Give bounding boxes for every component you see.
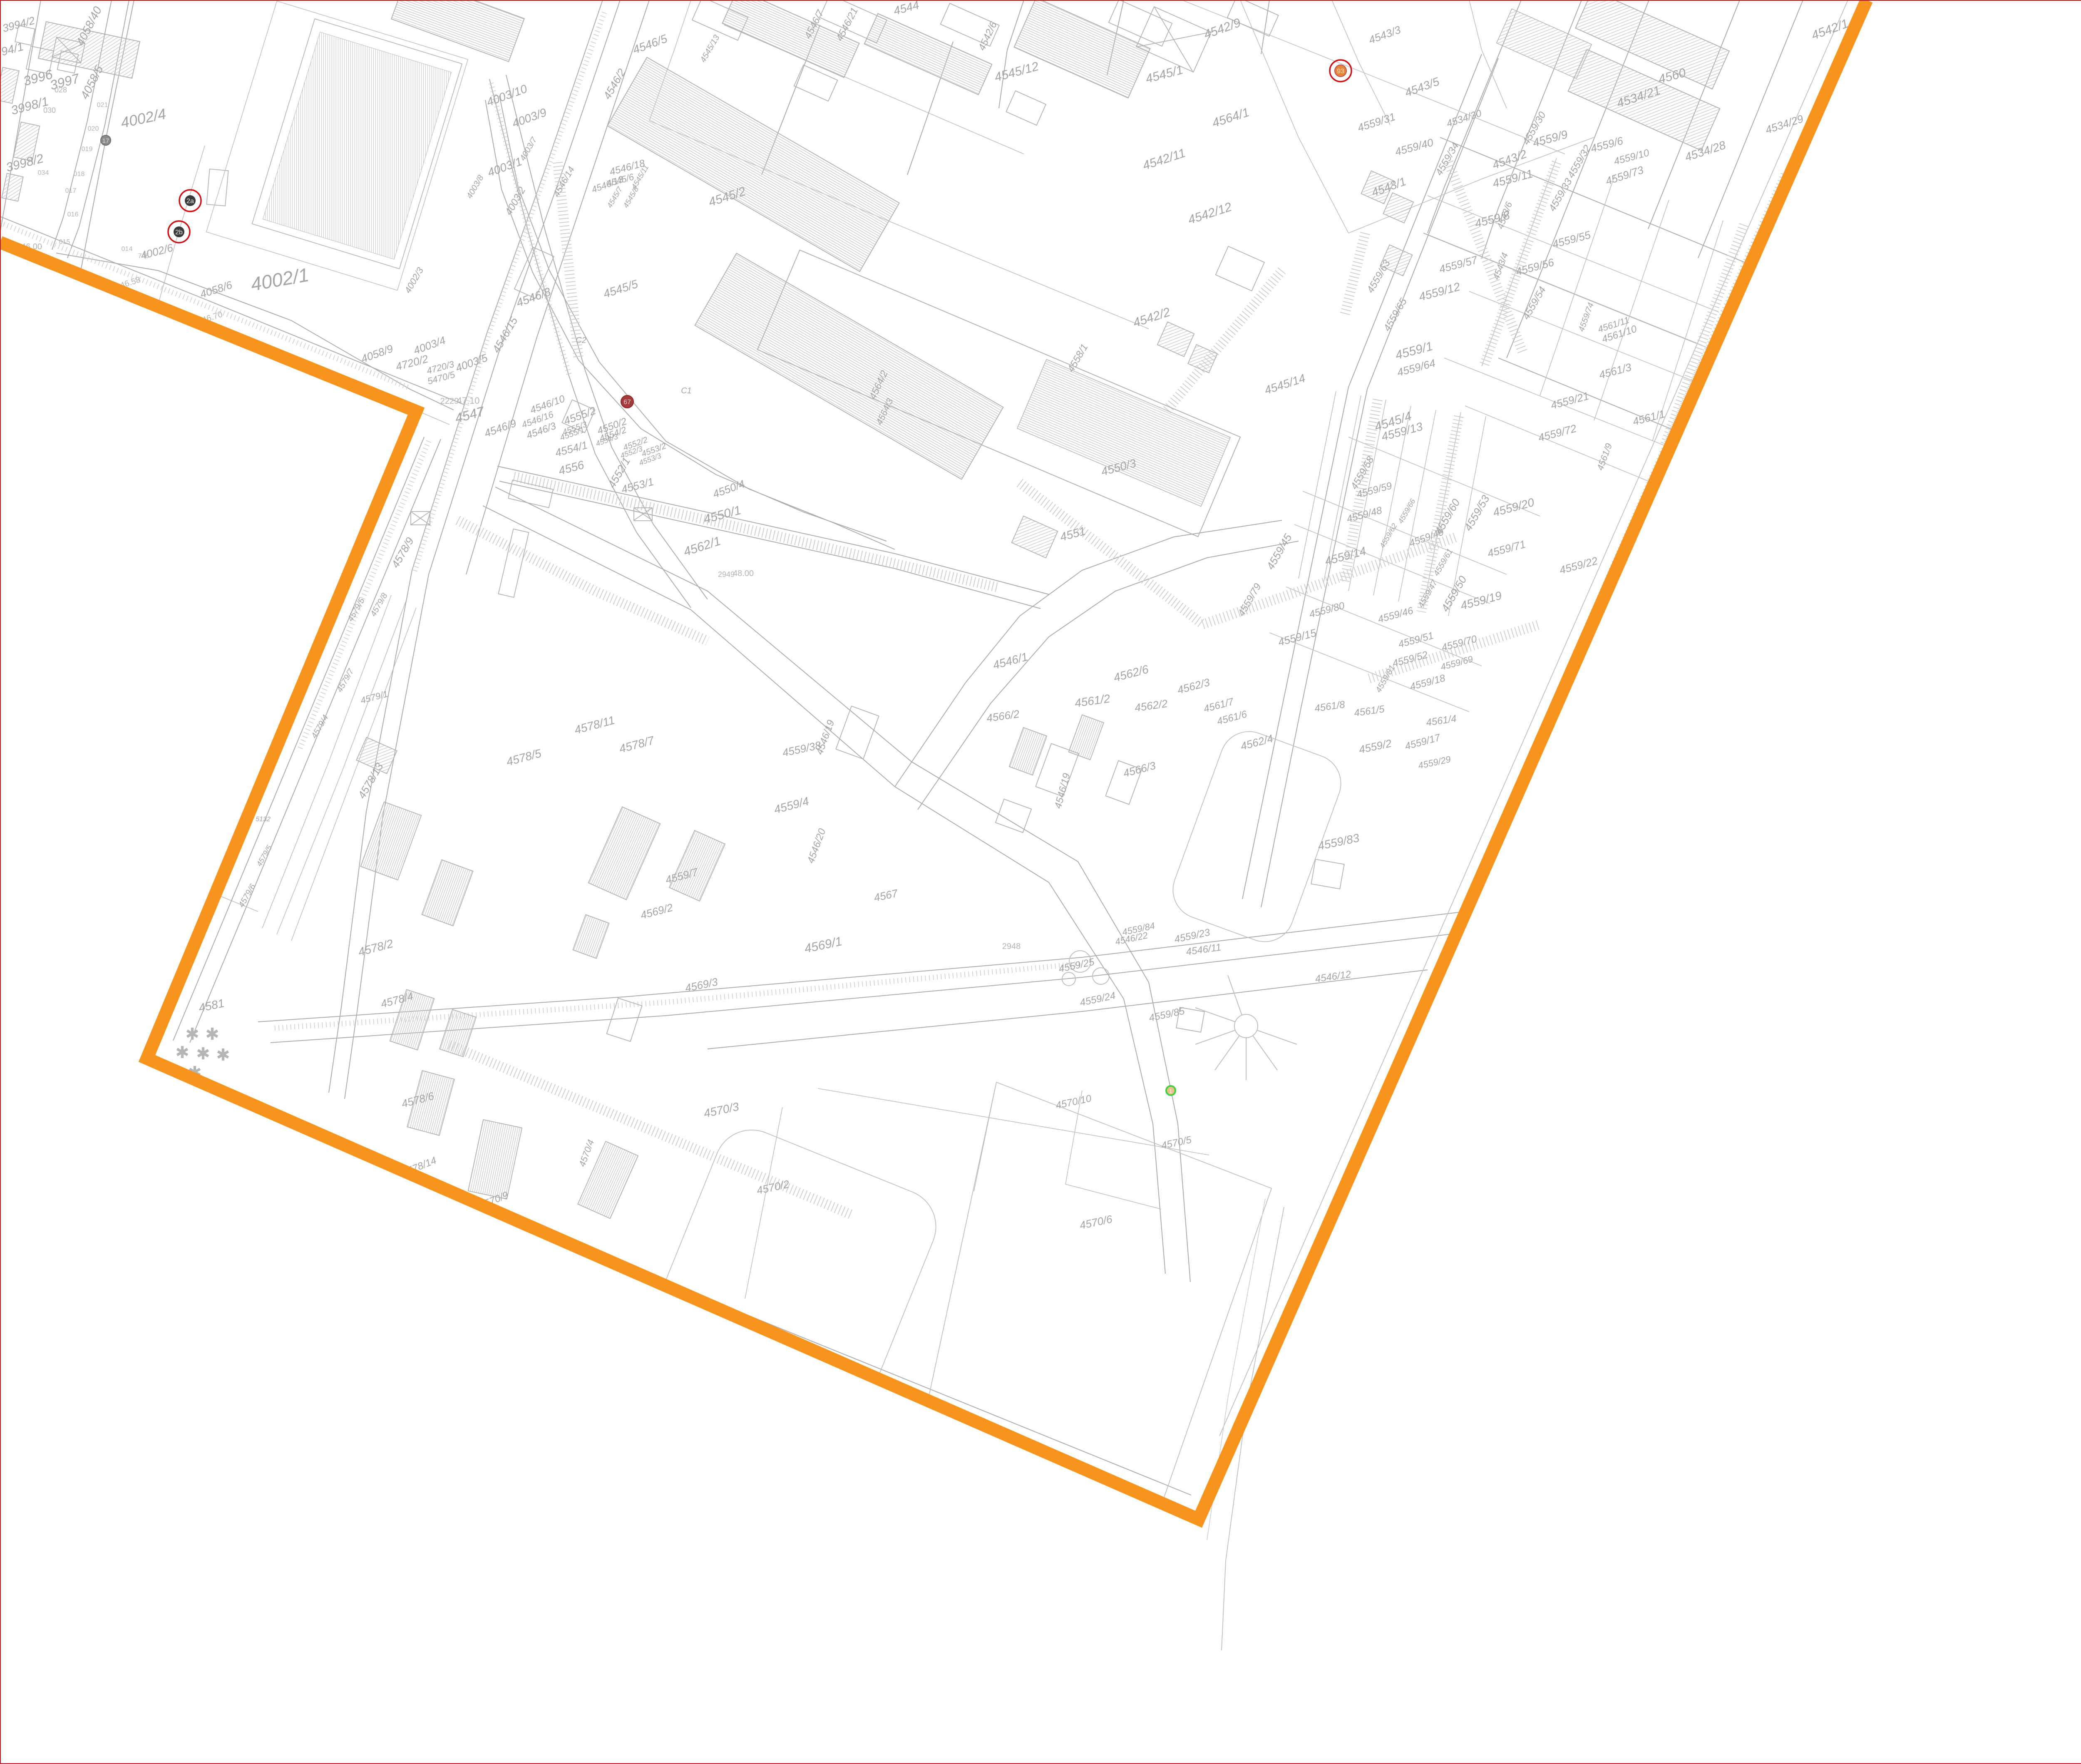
svg-text:015: 015 <box>59 239 70 246</box>
svg-text:✱: ✱ <box>185 1025 199 1043</box>
svg-text:016: 016 <box>67 211 79 218</box>
svg-text:020: 020 <box>88 125 99 132</box>
svg-text:018: 018 <box>74 171 85 178</box>
svg-text:17: 17 <box>102 137 109 144</box>
svg-text:✱: ✱ <box>205 1025 219 1043</box>
svg-text:745: 745 <box>138 253 149 260</box>
svg-text:C2: C2 <box>576 336 586 345</box>
svg-text:✱: ✱ <box>175 1043 189 1062</box>
svg-text:2949: 2949 <box>718 570 735 579</box>
svg-text:017: 017 <box>65 187 77 194</box>
svg-text:030: 030 <box>43 106 56 114</box>
svg-text:019: 019 <box>82 146 93 153</box>
svg-text:2229: 2229 <box>440 397 459 406</box>
svg-text:48.00: 48.00 <box>733 569 754 578</box>
svg-text:1: 1 <box>1169 1088 1172 1094</box>
svg-text:93: 93 <box>1337 68 1344 75</box>
svg-text:2b: 2b <box>175 229 183 236</box>
svg-text:2948: 2948 <box>1002 942 1021 951</box>
svg-text:✱: ✱ <box>196 1045 210 1063</box>
svg-text:021: 021 <box>97 102 108 109</box>
svg-text:47.10: 47.10 <box>457 395 479 406</box>
svg-text:034: 034 <box>38 169 49 176</box>
svg-text:5132: 5132 <box>256 816 271 823</box>
svg-text:C1: C1 <box>681 386 692 395</box>
svg-text:014: 014 <box>122 246 133 253</box>
svg-text:67: 67 <box>623 399 631 406</box>
svg-text:2a: 2a <box>186 198 194 205</box>
svg-text:028: 028 <box>55 86 67 94</box>
svg-text:✱: ✱ <box>216 1046 230 1064</box>
